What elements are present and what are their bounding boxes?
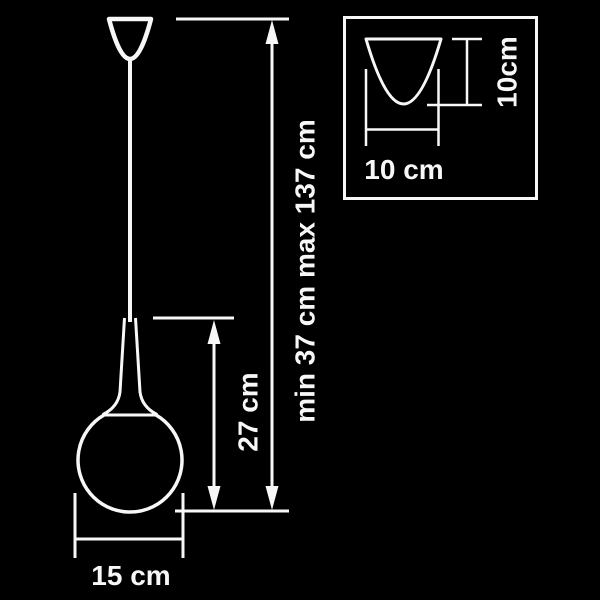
arrowhead-up-total bbox=[266, 20, 279, 44]
neck-right-wall bbox=[136, 318, 158, 415]
drawing-svg: min 37 cm max 137 cm 27 cm 15 cm 10 cm 1… bbox=[0, 0, 600, 600]
arrowhead-up-shade bbox=[208, 320, 221, 344]
dim-shade-height-label: 27 cm bbox=[233, 372, 264, 451]
arrowhead-down-total bbox=[266, 486, 279, 510]
inset-dim-width-label: 10 cm bbox=[364, 154, 443, 185]
inset-dim-height-label: 10cm bbox=[492, 36, 523, 108]
arrowhead-down-shade bbox=[208, 486, 221, 510]
pendant-lamp-dimension-drawing: min 37 cm max 137 cm 27 cm 15 cm 10 cm 1… bbox=[0, 0, 600, 600]
inset-canopy-outline bbox=[366, 39, 441, 104]
glass-sphere bbox=[78, 415, 182, 512]
neck-left-wall bbox=[103, 318, 125, 415]
dim-total-height-label: min 37 cm max 137 cm bbox=[290, 119, 321, 423]
dim-shade-width-label: 15 cm bbox=[91, 560, 170, 591]
canopy-outline bbox=[109, 19, 151, 59]
